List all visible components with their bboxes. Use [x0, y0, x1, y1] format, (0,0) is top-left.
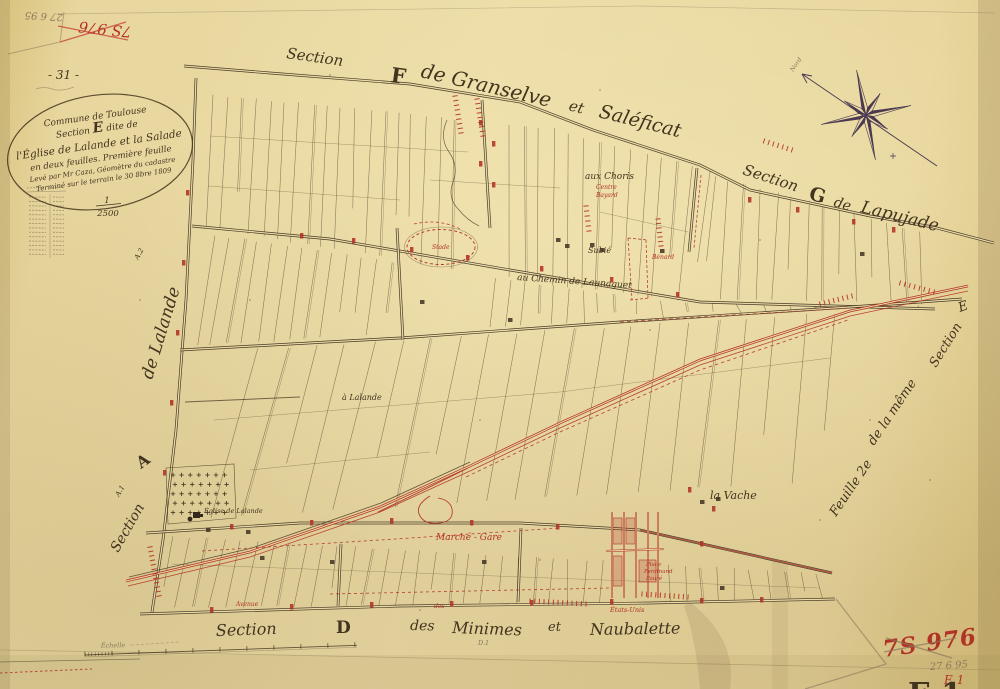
map-canvas: 1 2500 Échelle Commune de Toulouse Secti… — [0, 0, 1000, 689]
section-bottom-pencil-sub: D.1 — [477, 639, 489, 647]
section-left-word: Section — [108, 501, 148, 555]
label-ferdinand: Ferdinand — [643, 569, 673, 575]
section-top-word: Section — [285, 44, 344, 70]
label-marche-gare: Marché - Gare — [435, 532, 502, 543]
left-edge-shade — [0, 0, 10, 689]
pencil-squiggle — [36, 87, 74, 90]
label-faure: Fauré — [645, 575, 663, 582]
corner-notes-top-left: 27 6 95 7S 976 - 31 - — [24, 9, 132, 90]
compass-cross-tick — [890, 153, 896, 159]
title-cartouche: Commune de Toulouse SectionEdite de l'Ég… — [0, 83, 200, 222]
bottom-backing — [0, 655, 1000, 689]
stream-line — [443, 120, 479, 226]
label-launaguet: au Chemin de Launaguet — [517, 273, 633, 291]
section-bottom-name2: Naubalette — [589, 618, 681, 639]
north-label: Nord — [788, 56, 803, 74]
section-bottom-des: des — [410, 618, 435, 634]
red-street-grid — [606, 512, 664, 598]
section-left-sub-bottom: A.1 — [113, 484, 126, 499]
parcel-subdivision-lines — [172, 136, 830, 588]
label-stade: Stade — [432, 244, 450, 251]
section-bottom-name1: Minimes — [451, 618, 522, 639]
label-subie: Subié — [588, 246, 611, 255]
road-network — [140, 66, 994, 614]
red-reference-top-left: 7S 976 — [77, 17, 132, 41]
edge-meme: de la même — [865, 376, 920, 448]
label-bayard: Bayard — [595, 192, 618, 199]
page-number: - 31 - — [48, 68, 79, 82]
label-avenue: Avenue — [235, 601, 259, 608]
label-eglise: Église de Lalande — [203, 506, 263, 515]
scale-fraction-denominator: 2500 — [96, 209, 119, 219]
label-place: Place — [645, 562, 662, 568]
section-bottom-et: et — [548, 620, 562, 635]
section-left-letter: A — [132, 449, 154, 473]
compass-rose — [802, 70, 937, 166]
section-bottom-letter: D — [336, 618, 351, 638]
label-centre: Centre — [596, 184, 617, 191]
label-etats-unis: États-Unis — [609, 605, 645, 614]
cartouche-section-letter: E — [91, 119, 105, 137]
red-buildings — [163, 120, 895, 613]
railway-lines — [126, 286, 968, 586]
cadastral-map-sheet: 1 2500 Échelle Commune de Toulouse Secti… — [0, 0, 1000, 689]
section-bottom-word: Section — [215, 619, 277, 640]
ink-blot — [188, 517, 193, 522]
right-edge-shade — [978, 0, 1000, 689]
paper-specks — [139, 74, 931, 611]
scale-bar-label: Échelle — [100, 640, 126, 650]
label-benard: Bénard — [651, 254, 674, 261]
section-top-letter: F — [389, 62, 407, 89]
edge-feuille: Feuille 2e — [826, 457, 875, 520]
label-des: des — [434, 603, 444, 610]
label-aux-choris: aux Choris — [585, 172, 634, 182]
pencil-note-top-left: 27 6 95 — [24, 9, 64, 22]
edge-section: Section — [927, 320, 966, 370]
edge-letter: E — [955, 298, 970, 316]
section-right-letter: G — [807, 183, 829, 209]
section-top-name1: de Granselve — [419, 58, 554, 111]
scale-fraction: 1 2500 — [96, 196, 121, 219]
parcel-lines — [164, 95, 922, 608]
label-a-lalande: à Lalande — [342, 393, 382, 402]
section-top-et: et — [567, 96, 587, 117]
section-left-sub-top: A.2 — [132, 246, 146, 262]
label-la-vache: la Vache — [710, 489, 757, 502]
section-right-name: Lapujade — [858, 197, 941, 236]
top-edge-line — [55, 6, 995, 14]
big-sheet-letter: E 1 — [908, 677, 962, 689]
